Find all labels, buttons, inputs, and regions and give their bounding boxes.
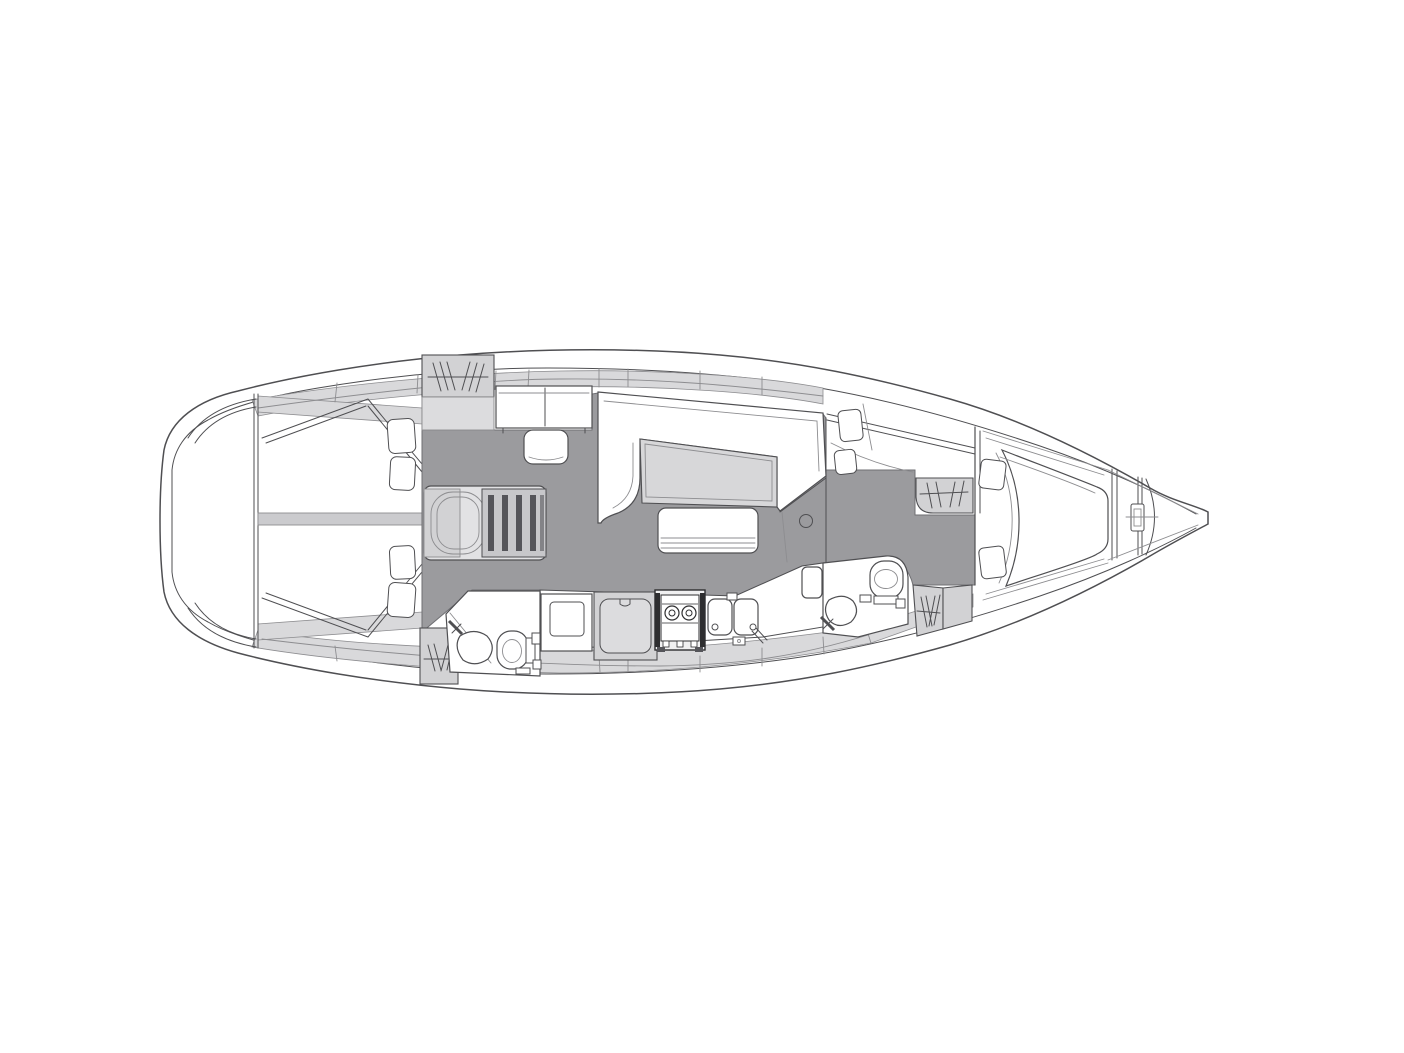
sink-icon <box>457 632 492 664</box>
floor-plan-image <box>0 0 1404 1053</box>
nav-desk <box>496 386 592 428</box>
hanging-locker-fwd-head <box>913 585 943 636</box>
cooler-lid <box>600 599 651 653</box>
pillow <box>389 545 416 579</box>
bench-seat <box>658 508 758 553</box>
pillow <box>389 456 416 490</box>
stove-icon <box>655 590 705 652</box>
centerline-partition <box>258 513 422 525</box>
companionway <box>424 486 546 560</box>
fridge-door <box>550 602 584 636</box>
steps-side-block <box>424 489 460 557</box>
pillow <box>837 409 863 442</box>
anchor-windlass-icon <box>1131 504 1144 531</box>
faucet-icon <box>727 593 737 600</box>
pillow <box>978 546 1007 580</box>
pillow <box>978 459 1006 491</box>
pillow <box>834 449 857 475</box>
soap-dish <box>733 637 745 645</box>
pillow <box>387 582 416 618</box>
locker-box-fwd <box>943 585 972 629</box>
locker-box <box>422 397 494 430</box>
toilet-icon <box>497 631 541 674</box>
aft-head <box>446 591 541 676</box>
nav-seat <box>524 430 568 464</box>
hanging-locker-corridor <box>916 478 973 513</box>
pillow <box>387 418 416 454</box>
hanging-locker-aft-top <box>422 355 494 397</box>
head-door <box>802 567 822 598</box>
